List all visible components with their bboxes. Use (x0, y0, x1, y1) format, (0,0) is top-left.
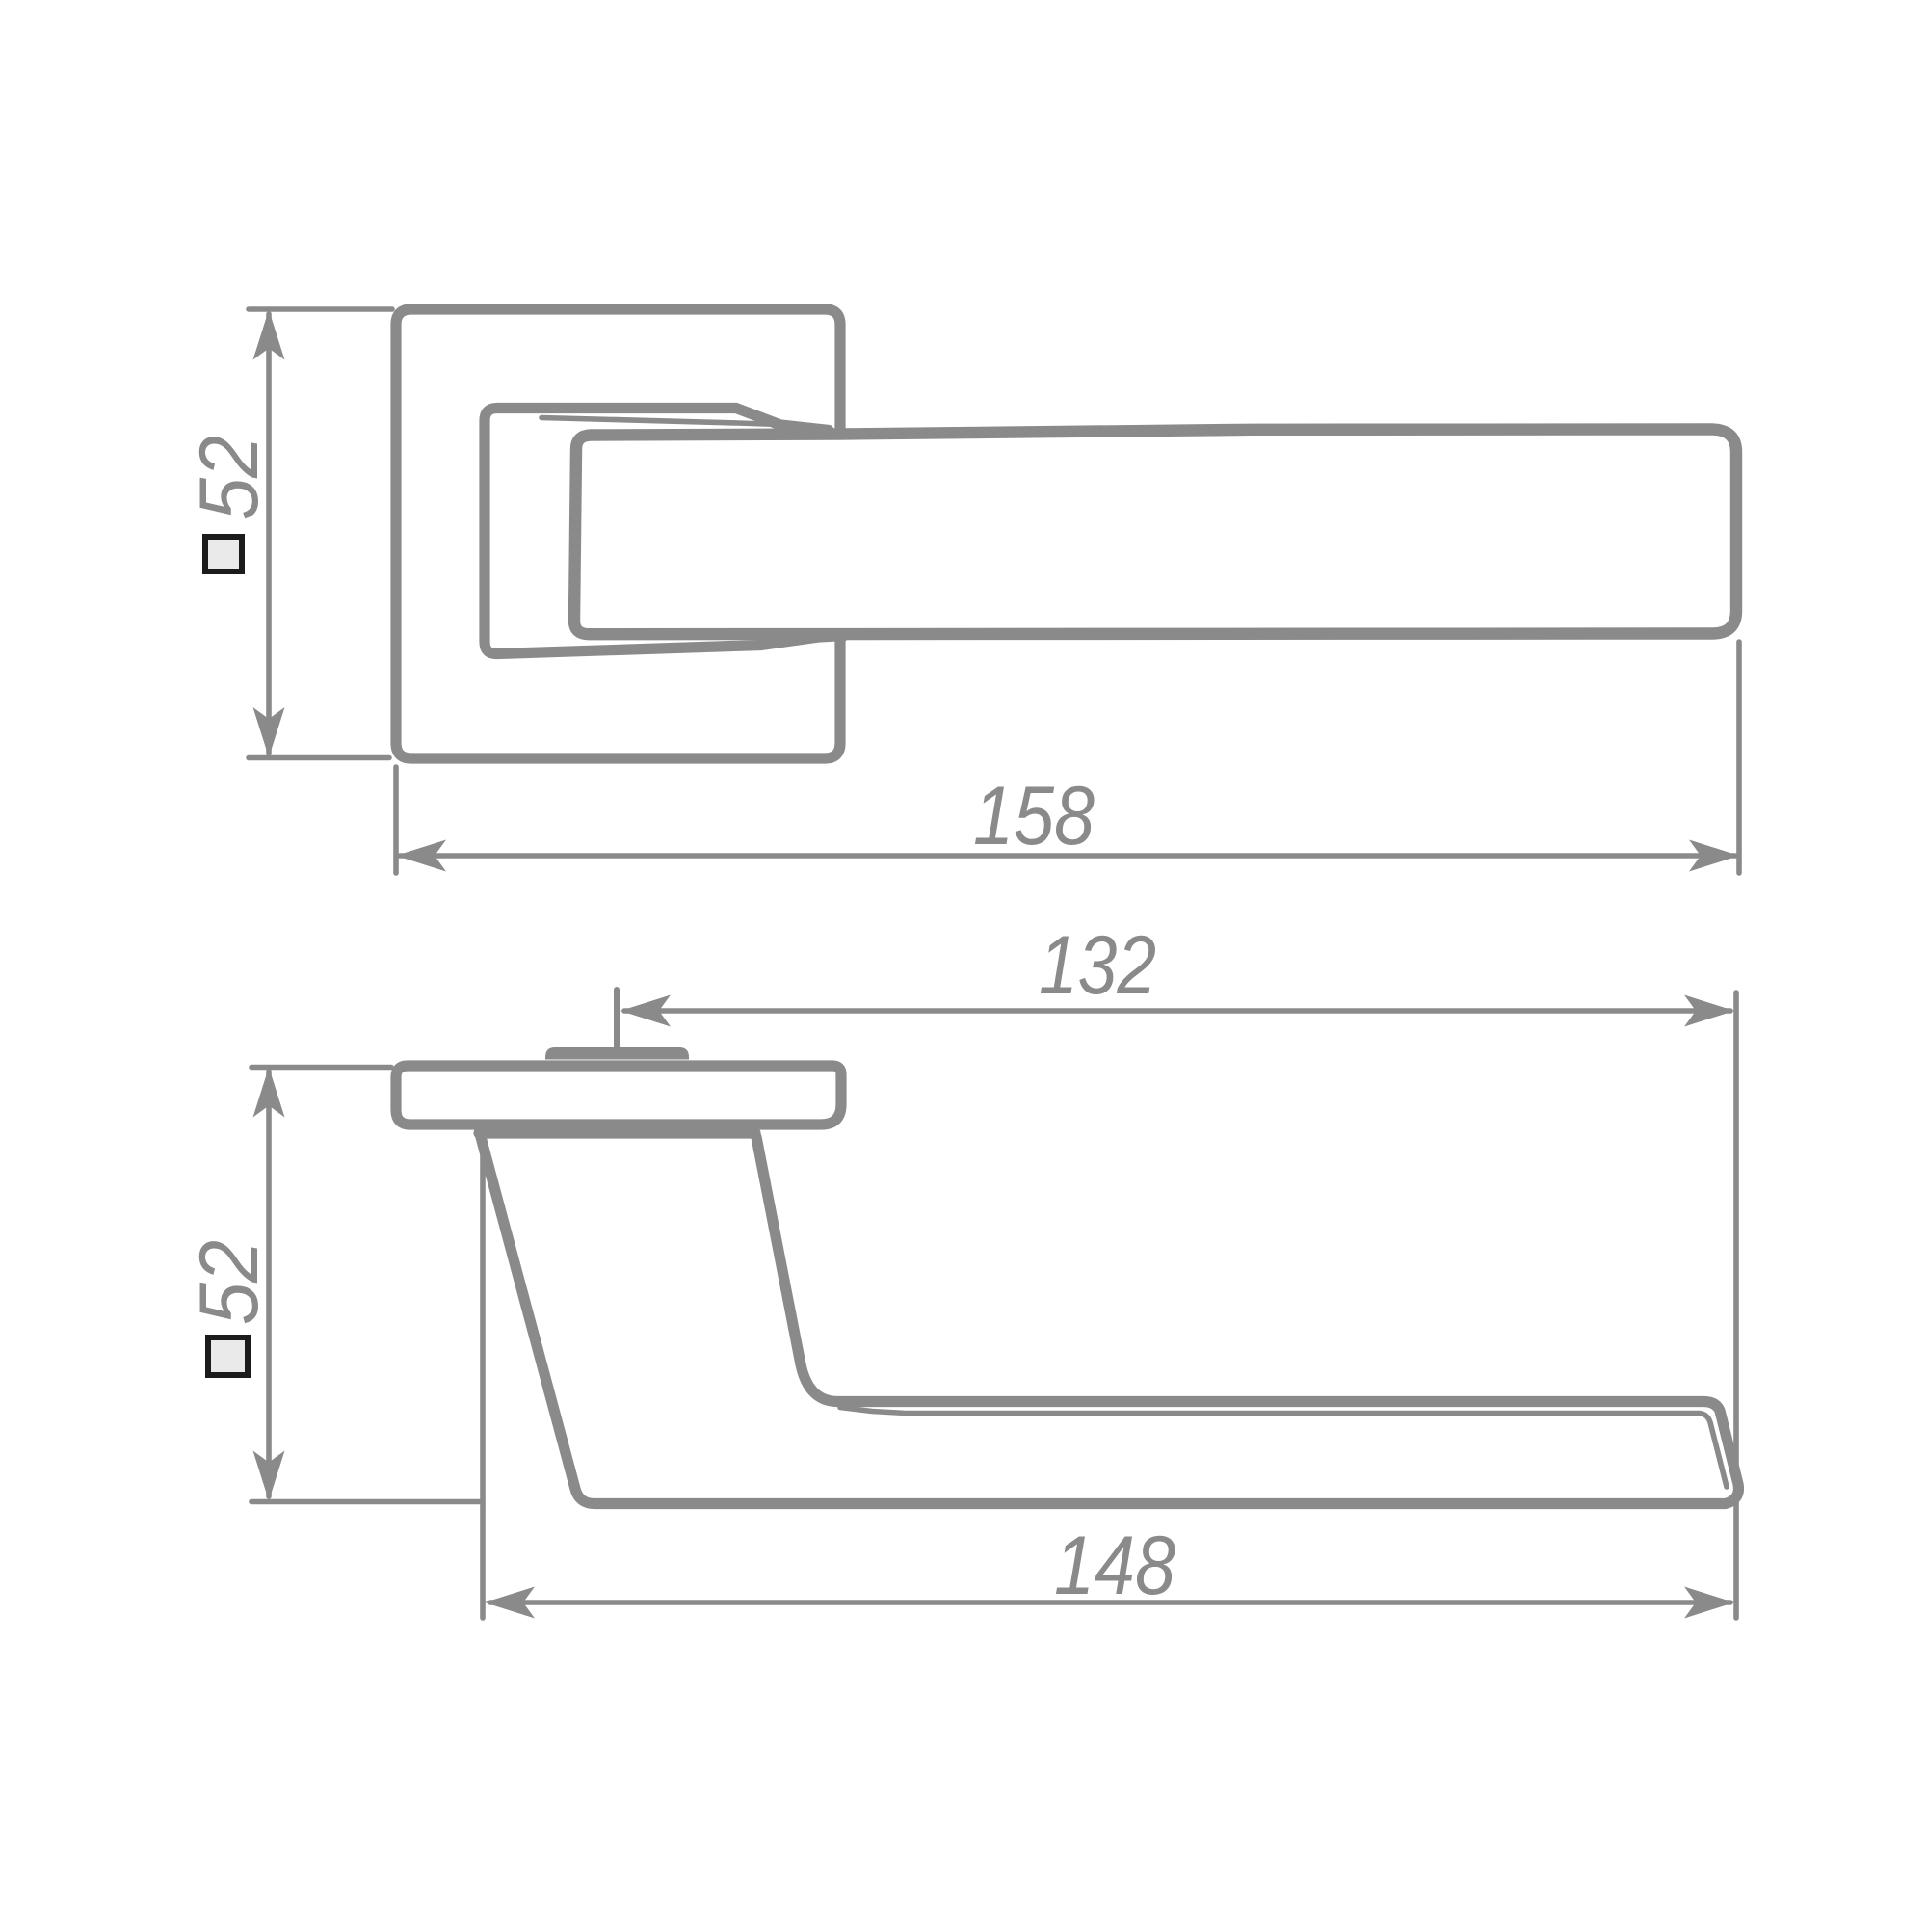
svg-text:52: 52 (183, 1240, 276, 1325)
svg-text:158: 158 (973, 770, 1095, 862)
svg-text:132: 132 (1039, 919, 1156, 1012)
svg-text:148: 148 (1054, 1520, 1175, 1612)
svg-text:52: 52 (183, 436, 276, 520)
